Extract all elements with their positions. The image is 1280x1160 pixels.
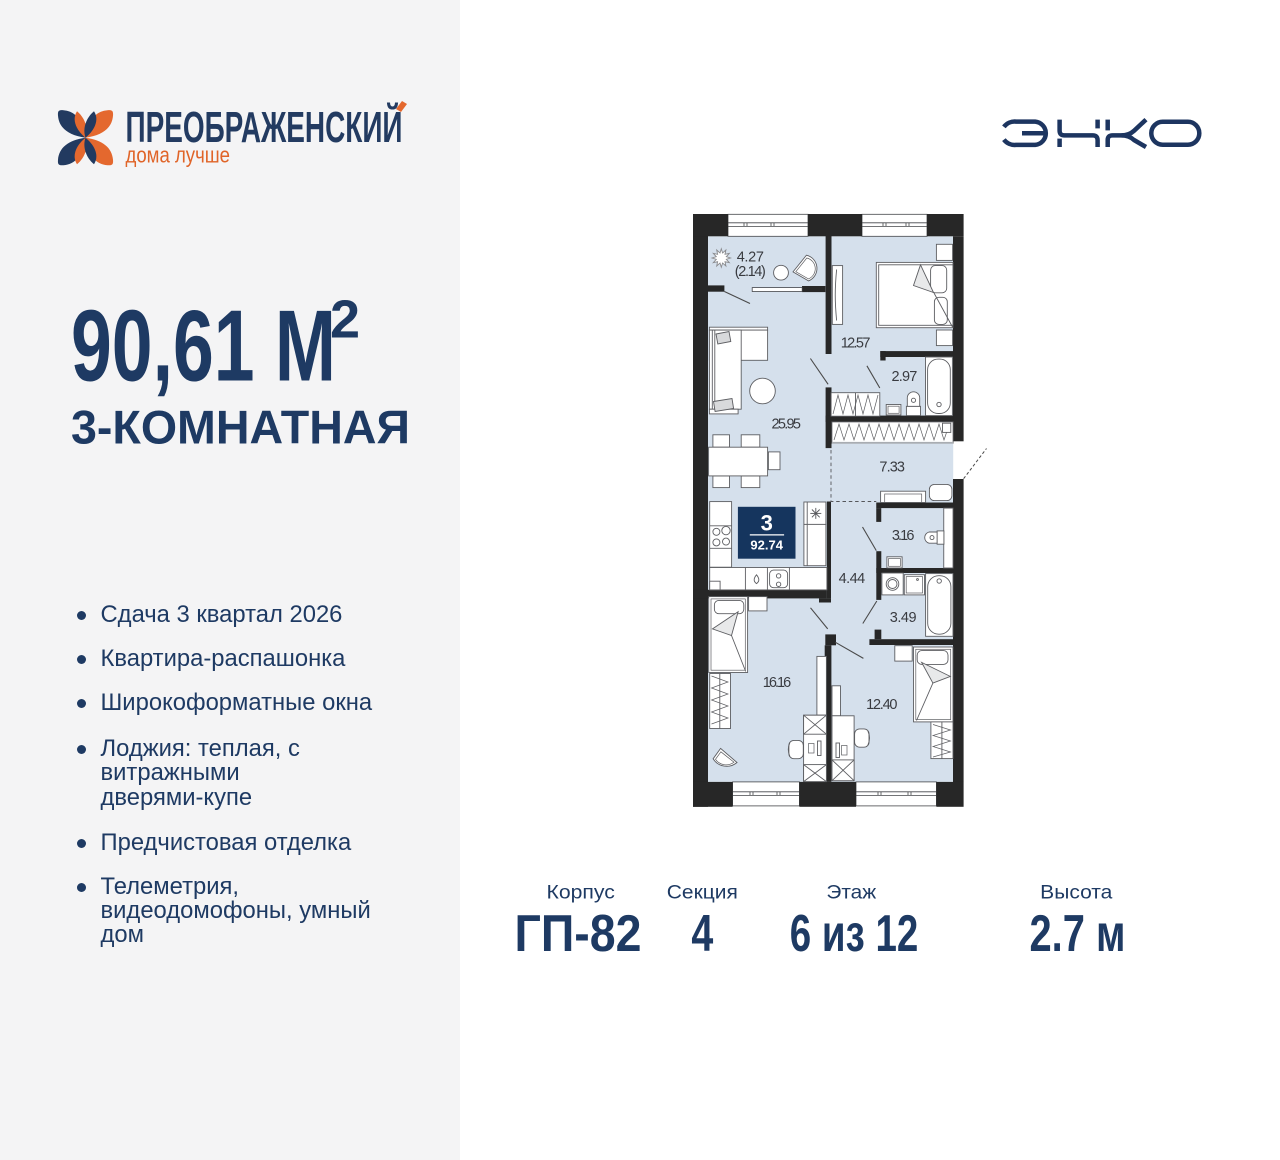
svg-text:7.33: 7.33 — [879, 459, 905, 475]
svg-text:90,61 М: 90,61 М — [71, 291, 336, 403]
svg-text:3-КОМНАТНАЯ: 3-КОМНАТНАЯ — [71, 402, 410, 455]
svg-text:ГП-82: ГП-82 — [515, 905, 642, 963]
svg-text:Этаж: Этаж — [826, 882, 877, 904]
svg-text:дома лучше: дома лучше — [126, 143, 231, 168]
svg-text:3.49: 3.49 — [890, 610, 917, 626]
svg-text:6 из 12: 6 из 12 — [790, 905, 919, 963]
svg-text:Секция: Секция — [667, 882, 738, 904]
svg-text:12.57: 12.57 — [841, 336, 871, 352]
svg-text:25.95: 25.95 — [772, 417, 802, 433]
svg-text:16.16: 16.16 — [763, 675, 791, 691]
svg-text:12.40: 12.40 — [866, 697, 897, 713]
svg-text:2.97: 2.97 — [892, 369, 918, 385]
svg-text:92.74: 92.74 — [750, 538, 783, 553]
svg-text:(2.14): (2.14) — [735, 264, 766, 280]
svg-text:3: 3 — [761, 510, 773, 535]
svg-text:4: 4 — [691, 905, 713, 963]
svg-text:3.16: 3.16 — [892, 528, 915, 544]
svg-text:Высота: Высота — [1040, 882, 1112, 904]
svg-text:4.44: 4.44 — [839, 571, 866, 587]
svg-text:2: 2 — [330, 290, 360, 350]
svg-text:2.7 м: 2.7 м — [1030, 905, 1126, 963]
svg-text:Корпус: Корпус — [547, 882, 615, 904]
